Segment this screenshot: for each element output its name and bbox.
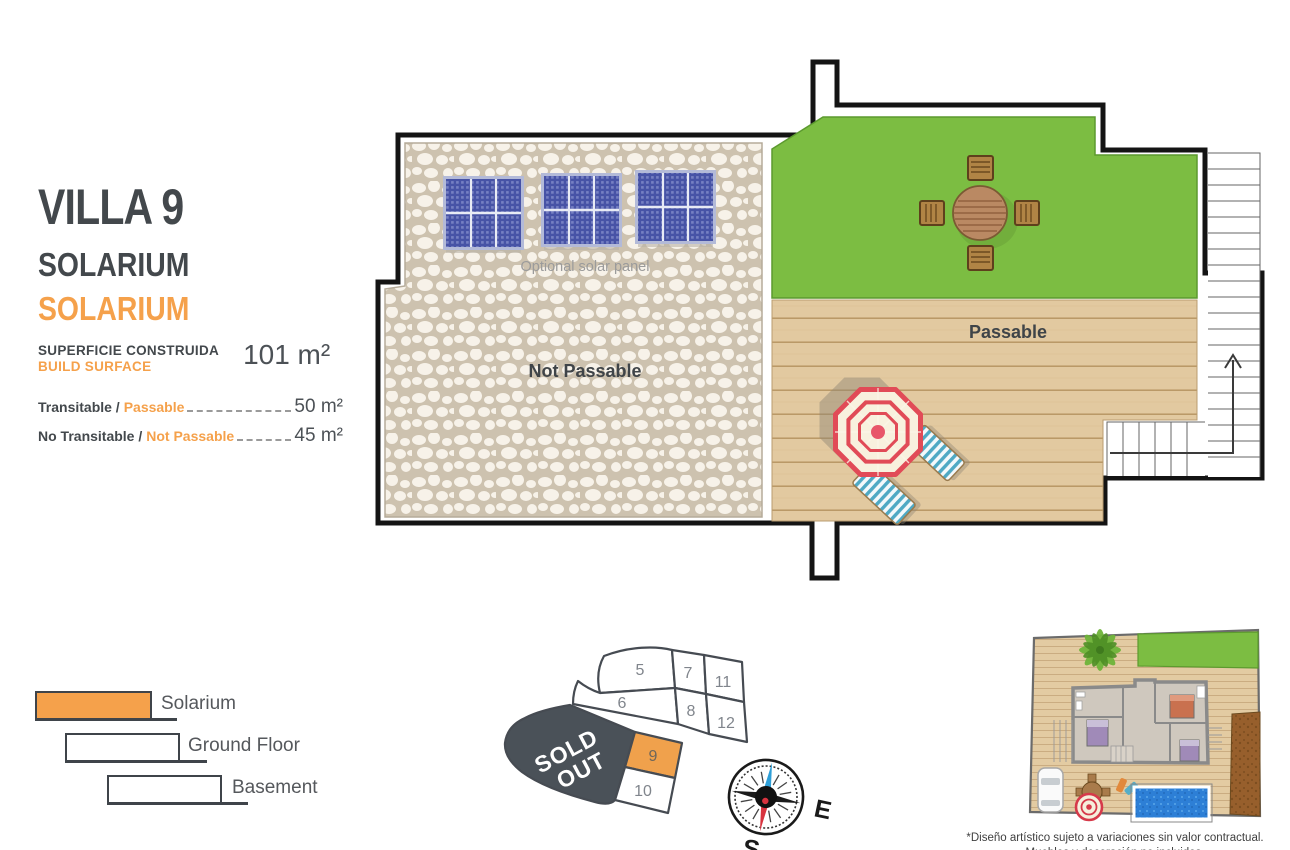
legend-label-solarium: Solarium [161, 693, 236, 715]
disclaimer-line2: Muebles y decoración no incluidos. [950, 846, 1280, 850]
build-surface-block: SUPERFICIE CONSTRUIDA BUILD SURFACE 101 … [38, 343, 330, 375]
disclaimer-text: *Diseño artístico sujeto a variaciones s… [950, 831, 1280, 850]
floor-subtitle-accent: SOLARIUM [38, 290, 189, 328]
metric-label-es: No Transitable / [38, 428, 142, 444]
passable-label: Passable [969, 322, 1047, 342]
floor-legend: Solarium Ground Floor Basement [20, 675, 320, 815]
plot-number-12: 12 [717, 715, 735, 732]
site-garden-bed [1230, 712, 1260, 816]
compass-east-label: E [812, 794, 834, 825]
floor-subtitle-en: SOLARIUM [38, 246, 189, 284]
metric-row-not-passable: No Transitable / Not Passable 45 m² [38, 425, 343, 447]
plot-number-5: 5 [636, 662, 645, 679]
legend-swatch-ground-floor [65, 733, 180, 762]
solar-panel-icon [541, 173, 622, 250]
surface-metrics: Transitable / Passable 50 m² No Transita… [38, 396, 343, 454]
metric-label-en: Not Passable [146, 428, 234, 444]
legend-swatch-solarium [35, 691, 152, 720]
legend-label-basement: Basement [232, 777, 318, 799]
solar-panel-icon [635, 170, 716, 247]
compass-south-label: S [741, 834, 761, 850]
metric-label-es: Transitable / [38, 399, 120, 415]
car-icon [1038, 768, 1063, 812]
solar-panels [443, 170, 716, 253]
page-title: VILLA 9 [38, 178, 183, 236]
not-passable-label: Not Passable [528, 361, 641, 381]
dashed-leader [237, 438, 291, 441]
compass-rose: E S [712, 750, 852, 850]
plot-number-9: 9 [649, 748, 658, 765]
solar-panel-icon [443, 176, 524, 253]
dashed-leader [187, 409, 291, 412]
plot-number-7: 7 [684, 665, 693, 682]
build-surface-value: 101 m² [243, 339, 330, 371]
plot-number-10: 10 [634, 783, 652, 800]
palm-tree-icon [1079, 629, 1121, 671]
plot-number-8: 8 [687, 703, 696, 720]
solarium-floor-plan: Optional solar panel Not Passable Passab… [370, 55, 1270, 583]
plot-number-6: 6 [618, 695, 627, 712]
site-lawn [1138, 632, 1258, 668]
compass-icon [723, 754, 809, 840]
metric-value: 50 m² [294, 396, 343, 418]
solar-panel-label: Optional solar panel [521, 259, 650, 275]
metric-row-passable: Transitable / Passable 50 m² [38, 396, 343, 418]
staircase-turn-flight [1107, 422, 1205, 476]
site-house-plan [1054, 680, 1222, 763]
pool-icon [1131, 784, 1212, 822]
legend-label-ground-floor: Ground Floor [188, 735, 300, 757]
legend-swatch-basement [107, 775, 222, 804]
build-surface-label-en: BUILD SURFACE [38, 359, 219, 375]
page-canvas: VILLA 9 SOLARIUM SOLARIUM SUPERFICIE CON… [0, 0, 1290, 850]
plot-number-11: 11 [715, 674, 732, 691]
parasol-icon [835, 388, 921, 476]
ground-floor-site-thumbnail [1026, 626, 1266, 826]
metric-value: 45 m² [294, 425, 343, 447]
build-surface-labels: SUPERFICIE CONSTRUIDA BUILD SURFACE [38, 343, 219, 375]
build-surface-label-es: SUPERFICIE CONSTRUIDA [38, 343, 219, 359]
disclaimer-line1: *Diseño artístico sujeto a variaciones s… [950, 831, 1280, 846]
mini-parasol-icon [1076, 794, 1102, 820]
metric-label-en: Passable [124, 399, 185, 415]
